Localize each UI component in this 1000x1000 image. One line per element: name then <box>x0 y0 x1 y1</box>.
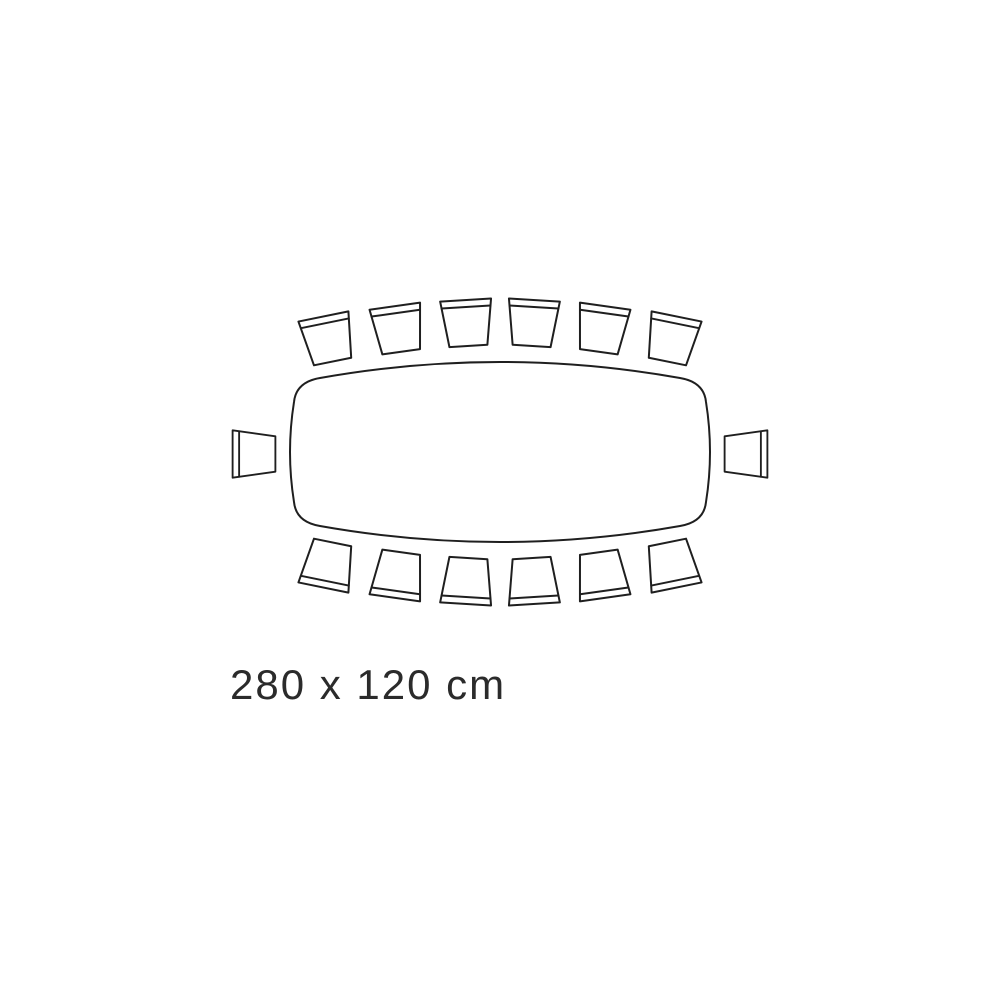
chair-top-6 <box>642 311 701 366</box>
chair-top-4 <box>506 298 560 347</box>
chair-bottom-6 <box>642 537 701 592</box>
chair-top-5 <box>574 303 631 356</box>
chair-bottom-4 <box>506 556 560 605</box>
table-outline <box>290 362 710 542</box>
chair-bottom-3 <box>440 556 494 605</box>
chair-top-2 <box>370 303 427 356</box>
chair-bottom-2 <box>370 549 427 602</box>
chair-top-3 <box>440 298 494 347</box>
dimensions-label: 280 x 120 cm <box>230 664 506 706</box>
product-dimension-page: 280 x 120 cm <box>0 0 1000 1000</box>
chair-right-end <box>725 430 768 477</box>
chair-bottom-5 <box>574 549 631 602</box>
chair-top-1 <box>298 311 357 366</box>
seating-diagram <box>0 0 1000 1000</box>
chair-left-end <box>233 430 276 477</box>
chair-bottom-1 <box>298 537 357 592</box>
